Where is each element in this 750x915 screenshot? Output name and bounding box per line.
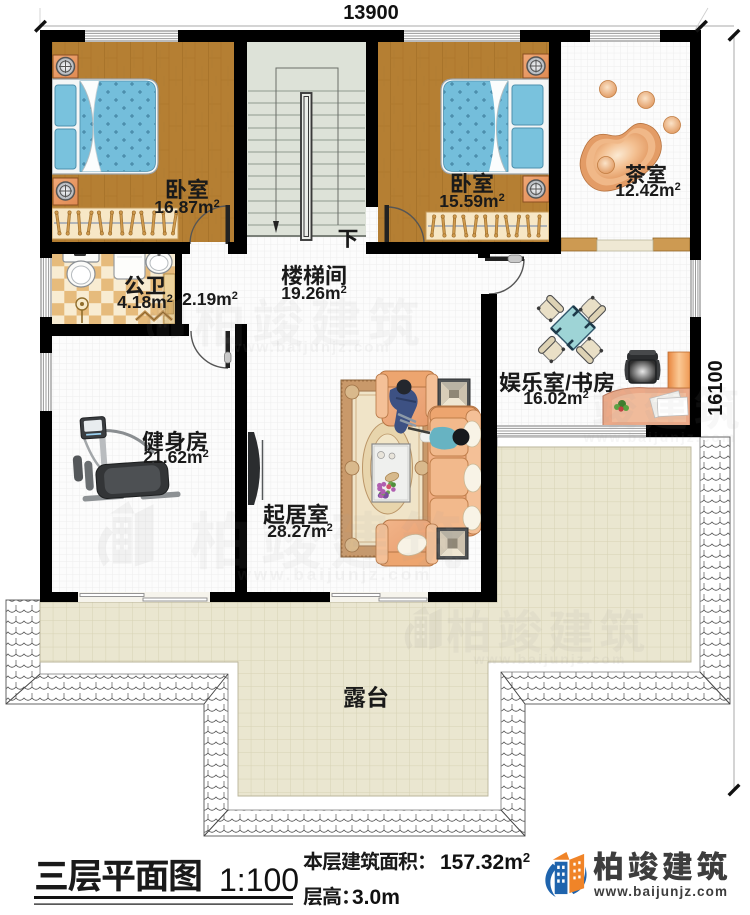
svg-text:157.32m2: 157.32m2 <box>440 850 530 874</box>
svg-text:15.59m2: 15.59m2 <box>439 191 504 211</box>
svg-text:12.42m2: 12.42m2 <box>615 180 680 200</box>
svg-text:16.02m2: 16.02m2 <box>523 388 588 408</box>
svg-text:www.baijunjz.com: www.baijunjz.com <box>473 651 627 667</box>
svg-text:19.26m2: 19.26m2 <box>281 283 346 303</box>
svg-text:16100: 16100 <box>705 360 727 416</box>
svg-text:2.19m2: 2.19m2 <box>182 289 238 309</box>
svg-text:1:100: 1:100 <box>219 862 299 898</box>
svg-text:16.87m2: 16.87m2 <box>154 197 219 217</box>
svg-text:13900: 13900 <box>343 2 399 24</box>
svg-text:28.27m2: 28.27m2 <box>267 521 332 541</box>
svg-text:21.62m2: 21.62m2 <box>143 447 208 467</box>
svg-text:www.baijunjz.com: www.baijunjz.com <box>237 565 433 584</box>
svg-text:www.baijunjz.com: www.baijunjz.com <box>593 884 728 899</box>
svg-text:www.baijunjz.com: www.baijunjz.com <box>583 429 737 445</box>
svg-text:4.18m2: 4.18m2 <box>117 292 173 312</box>
svg-text:3.0m: 3.0m <box>352 886 400 909</box>
svg-text:www.baijunjz.com: www.baijunjz.com <box>228 339 390 356</box>
